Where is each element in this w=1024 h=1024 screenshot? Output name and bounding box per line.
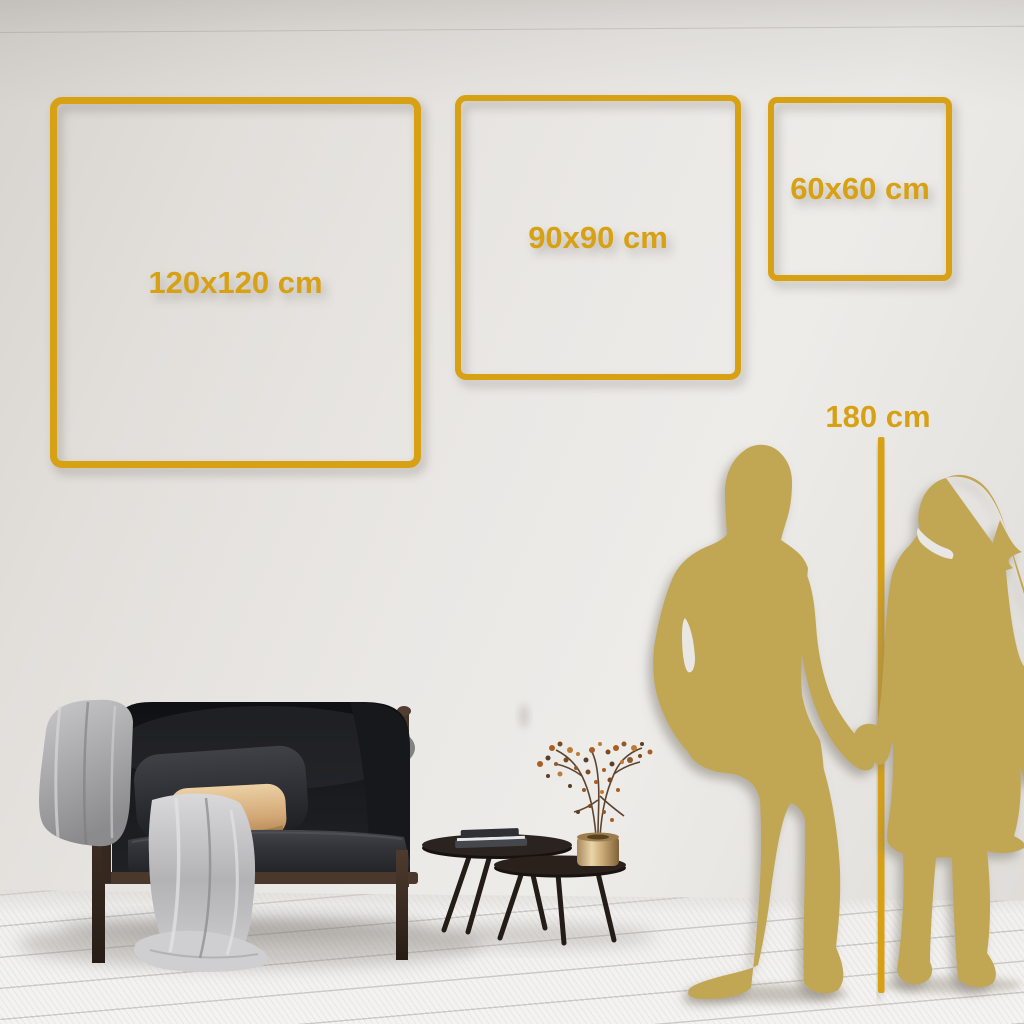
man-silhouette: [653, 445, 843, 999]
wall-art-size-guide-image: 120x120 cm 90x90 cm 60x60 cm 180 cm: [0, 0, 1024, 1024]
couple-silhouette-illustration: [0, 0, 1024, 1024]
